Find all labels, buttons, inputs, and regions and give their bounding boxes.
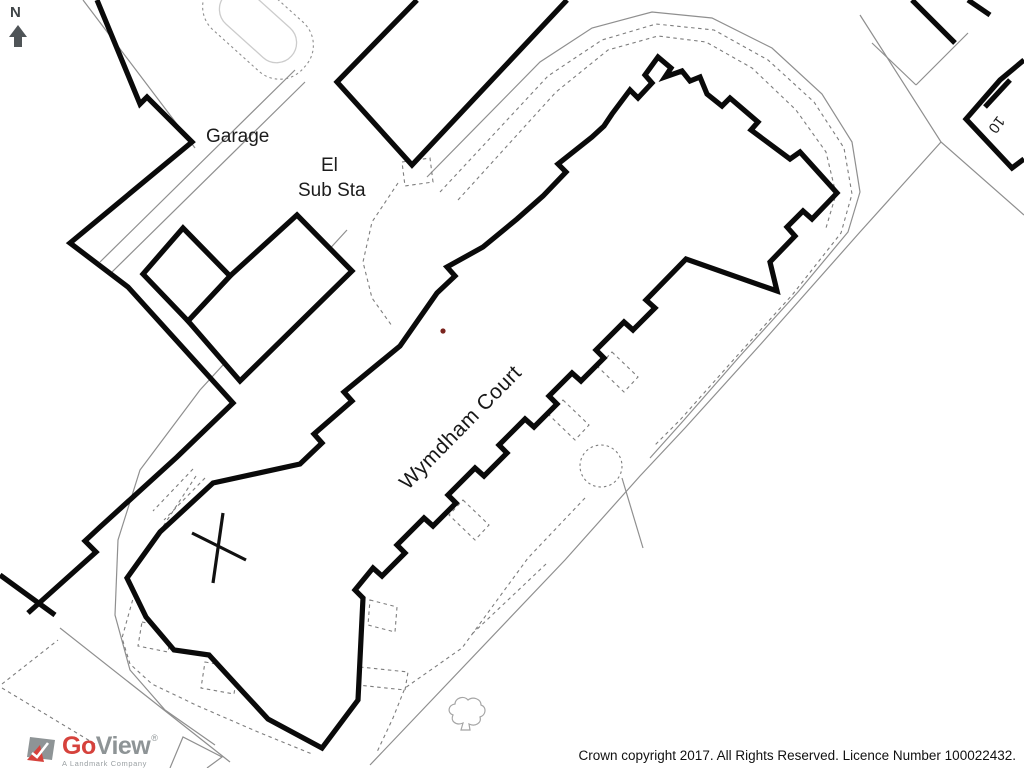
el-sub-sta-label-line2: Sub Sta (298, 180, 366, 202)
red-dot-marker (440, 328, 445, 333)
logo-brand-view: View (96, 734, 151, 759)
north-label: N (10, 4, 21, 21)
tree-icon (449, 697, 485, 730)
copyright-notice: Crown copyright 2017. All Rights Reserve… (579, 748, 1017, 763)
logo-tagline: A Landmark Company (62, 760, 158, 768)
goview-logo-icon (26, 734, 58, 764)
north-arrow-icon (9, 25, 27, 47)
garage-label: Garage (206, 126, 269, 148)
logo-brand-go: Go (62, 734, 96, 759)
site-plan-map: N Garage El Sub Sta Wymdham Court 10 Cro… (0, 0, 1024, 768)
el-sub-sta-label-line1: El (321, 155, 338, 177)
goview-logo-text: Go View ® A Landmark Company (62, 734, 158, 768)
building-top-centre (337, 0, 567, 165)
goview-logo: Go View ® A Landmark Company (26, 734, 158, 768)
buildings-thick-outlines (127, 0, 837, 748)
registered-trademark-icon: ® (151, 734, 158, 743)
loop-hardstanding (190, 0, 326, 92)
